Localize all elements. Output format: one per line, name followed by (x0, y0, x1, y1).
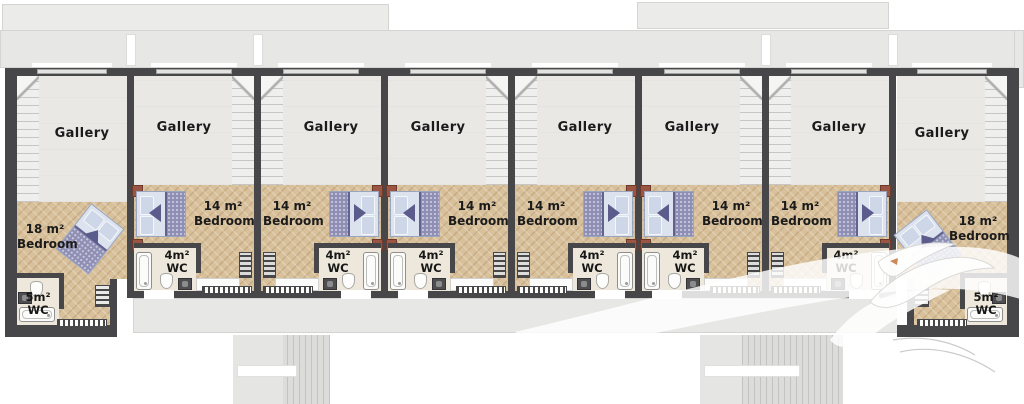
floor-plan: Gallery 18 m² Bedroom 5m² WC (0, 0, 1024, 404)
blanket-fold (149, 204, 161, 222)
bed (329, 191, 379, 237)
gallery-floor: Gallery (17, 76, 127, 202)
wc-wall (704, 243, 709, 273)
gallery-label: Gallery (769, 120, 889, 135)
gallery-floor: Gallery (642, 76, 762, 185)
unit-2: Gallery 14 m² Bedroom 4m² WC (134, 76, 254, 291)
wc-label: 5m² WC (20, 291, 56, 317)
door-opening (849, 290, 879, 299)
gallery-floor: Gallery (515, 76, 635, 185)
staircase-lower-icon (263, 252, 276, 278)
blanket (165, 192, 185, 236)
facade-notch (110, 279, 127, 325)
wc-room: 4m² WC (388, 243, 450, 291)
party-wall-tab (888, 34, 898, 66)
bedroom-label: 14 m² Bedroom (771, 199, 829, 229)
sink (577, 278, 591, 290)
unit-5: Gallery 14 m² Bedroom 4m² WC (515, 76, 635, 291)
blanket-fold (608, 204, 620, 222)
wc-room: 4m² WC (573, 243, 635, 291)
bed (583, 191, 633, 237)
wc-label: 4m² WC (159, 249, 195, 275)
sink (323, 278, 337, 290)
staircase-lower-icon (914, 285, 929, 307)
party-wall-tab (761, 34, 771, 66)
wc-room: 5m² WC (965, 273, 1007, 325)
bedroom-label: 14 m² Bedroom (702, 199, 760, 229)
door-opening (595, 290, 625, 299)
party-wall-tab (126, 34, 136, 66)
bed (390, 191, 440, 237)
bedroom-label: 18 m² Bedroom (949, 214, 1007, 244)
bedroom-label: 14 m² Bedroom (194, 199, 252, 229)
wc-label: 4m² WC (667, 249, 703, 275)
blanket-fold (657, 204, 669, 222)
window-sill (405, 63, 491, 67)
window-sill (532, 63, 618, 67)
outer-wall-left (5, 68, 17, 337)
wc-label: 4m² WC (413, 249, 449, 275)
wc-room: 4m² WC (134, 243, 196, 291)
wc-wall (822, 243, 827, 273)
window-icon (456, 286, 506, 294)
wc-label: 4m² WC (320, 249, 356, 275)
staircase-lower-icon (517, 252, 530, 278)
blanket-fold (354, 204, 366, 222)
gallery-floor: Gallery (388, 76, 508, 185)
staircase-lower-icon (771, 252, 784, 278)
gallery-floor: Gallery (134, 76, 254, 185)
blanket (673, 192, 693, 236)
bedroom-label: 14 m² Bedroom (448, 199, 506, 229)
party-wall (127, 68, 134, 298)
unit-8: Gallery 18 m² Bedroom 5m² WC (897, 76, 1007, 325)
wc-wall (196, 243, 201, 273)
gallery-label: Gallery (388, 120, 508, 135)
window-sill (786, 63, 872, 67)
wc-wall (450, 243, 455, 273)
unit-4: Gallery 14 m² Bedroom 4m² WC (388, 76, 508, 291)
gallery-label: Gallery (134, 120, 254, 135)
gallery-floor: Gallery (769, 76, 889, 185)
door-opening (144, 290, 174, 299)
sink (178, 278, 192, 290)
window-icon (791, 69, 868, 74)
sink (686, 278, 700, 290)
party-wall-tab (253, 34, 263, 66)
wc-room: 5m² WC (17, 273, 59, 325)
unit-3: Gallery 14 m² Bedroom 4m² WC (261, 76, 381, 291)
gallery-label: Gallery (897, 126, 1007, 141)
wc-wall (568, 243, 573, 273)
bed (837, 191, 887, 237)
blanket-fold (862, 204, 874, 222)
gallery-label: Gallery (642, 120, 762, 135)
window-sill (278, 63, 364, 67)
bed (644, 191, 694, 237)
outer-wall-right (1007, 68, 1019, 337)
bathtub (871, 252, 887, 290)
wc-room: 4m² WC (642, 243, 704, 291)
wc-room: 4m² WC (319, 243, 381, 291)
window-icon (517, 286, 567, 294)
wc-wall (314, 243, 319, 273)
window-icon (202, 286, 252, 294)
bedroom-label: 18 m² Bedroom (17, 222, 73, 252)
window-icon (664, 69, 741, 74)
exterior-staircase (700, 335, 843, 404)
staircase-lower-icon (95, 285, 110, 307)
wc-label: 5m² WC (968, 291, 1004, 317)
window-icon (771, 286, 821, 294)
door-opening (652, 290, 682, 299)
party-wall (889, 68, 896, 298)
window-sill (32, 63, 111, 67)
unit-7: Gallery 14 m² Bedroom 4m² WC (769, 76, 889, 291)
blanket (330, 192, 350, 236)
sink (432, 278, 446, 290)
staircase-lower-icon (747, 252, 760, 278)
blanket (419, 192, 439, 236)
window-icon (537, 69, 614, 74)
blanket (838, 192, 858, 236)
window-icon (156, 69, 233, 74)
window-icon (410, 69, 487, 74)
bathtub (644, 252, 660, 290)
window-icon (917, 69, 987, 74)
window-icon (37, 69, 107, 74)
roof-band-upper-left (2, 4, 389, 31)
wc-wall (59, 273, 64, 309)
gallery-label: Gallery (515, 120, 635, 135)
bedroom-label: 14 m² Bedroom (517, 199, 575, 229)
window-sill (151, 63, 237, 67)
bathtub (363, 252, 379, 290)
window-sill (659, 63, 745, 67)
gallery-label: Gallery (261, 120, 381, 135)
party-wall (381, 68, 388, 298)
wc-room: 4m² WC (827, 243, 889, 291)
door-opening (398, 290, 428, 299)
party-wall (508, 68, 515, 298)
blanket (584, 192, 604, 236)
staircase-lower-icon (239, 252, 252, 278)
unit-6: Gallery 14 m² Bedroom 4m² WC (642, 76, 762, 291)
wc-wall (960, 273, 965, 309)
sink (831, 278, 845, 290)
bathtub (617, 252, 633, 290)
unit-1: Gallery 18 m² Bedroom 5m² WC (17, 76, 127, 325)
bed (136, 191, 186, 237)
roof-band-front (133, 298, 905, 333)
facade-notch (897, 279, 914, 325)
window-icon (57, 319, 107, 327)
door-opening (341, 290, 371, 299)
window-icon (710, 286, 760, 294)
party-wall (254, 68, 261, 298)
wc-label: 4m² WC (828, 249, 864, 275)
gallery-label: Gallery (17, 126, 127, 141)
gallery-floor: Gallery (897, 76, 1007, 202)
window-icon (283, 69, 360, 74)
bathtub (136, 252, 152, 290)
blanket-fold (403, 204, 415, 222)
window-icon (917, 319, 967, 327)
roof-band-upper-right (637, 2, 889, 29)
bedroom-label: 14 m² Bedroom (263, 199, 321, 229)
window-icon (263, 286, 313, 294)
exterior-staircase (233, 335, 330, 404)
staircase-lower-icon (493, 252, 506, 278)
gallery-floor: Gallery (261, 76, 381, 185)
party-wall (635, 68, 642, 298)
window-sill (912, 63, 991, 67)
bathtub (390, 252, 406, 290)
party-wall (762, 68, 769, 298)
wc-label: 4m² WC (574, 249, 610, 275)
